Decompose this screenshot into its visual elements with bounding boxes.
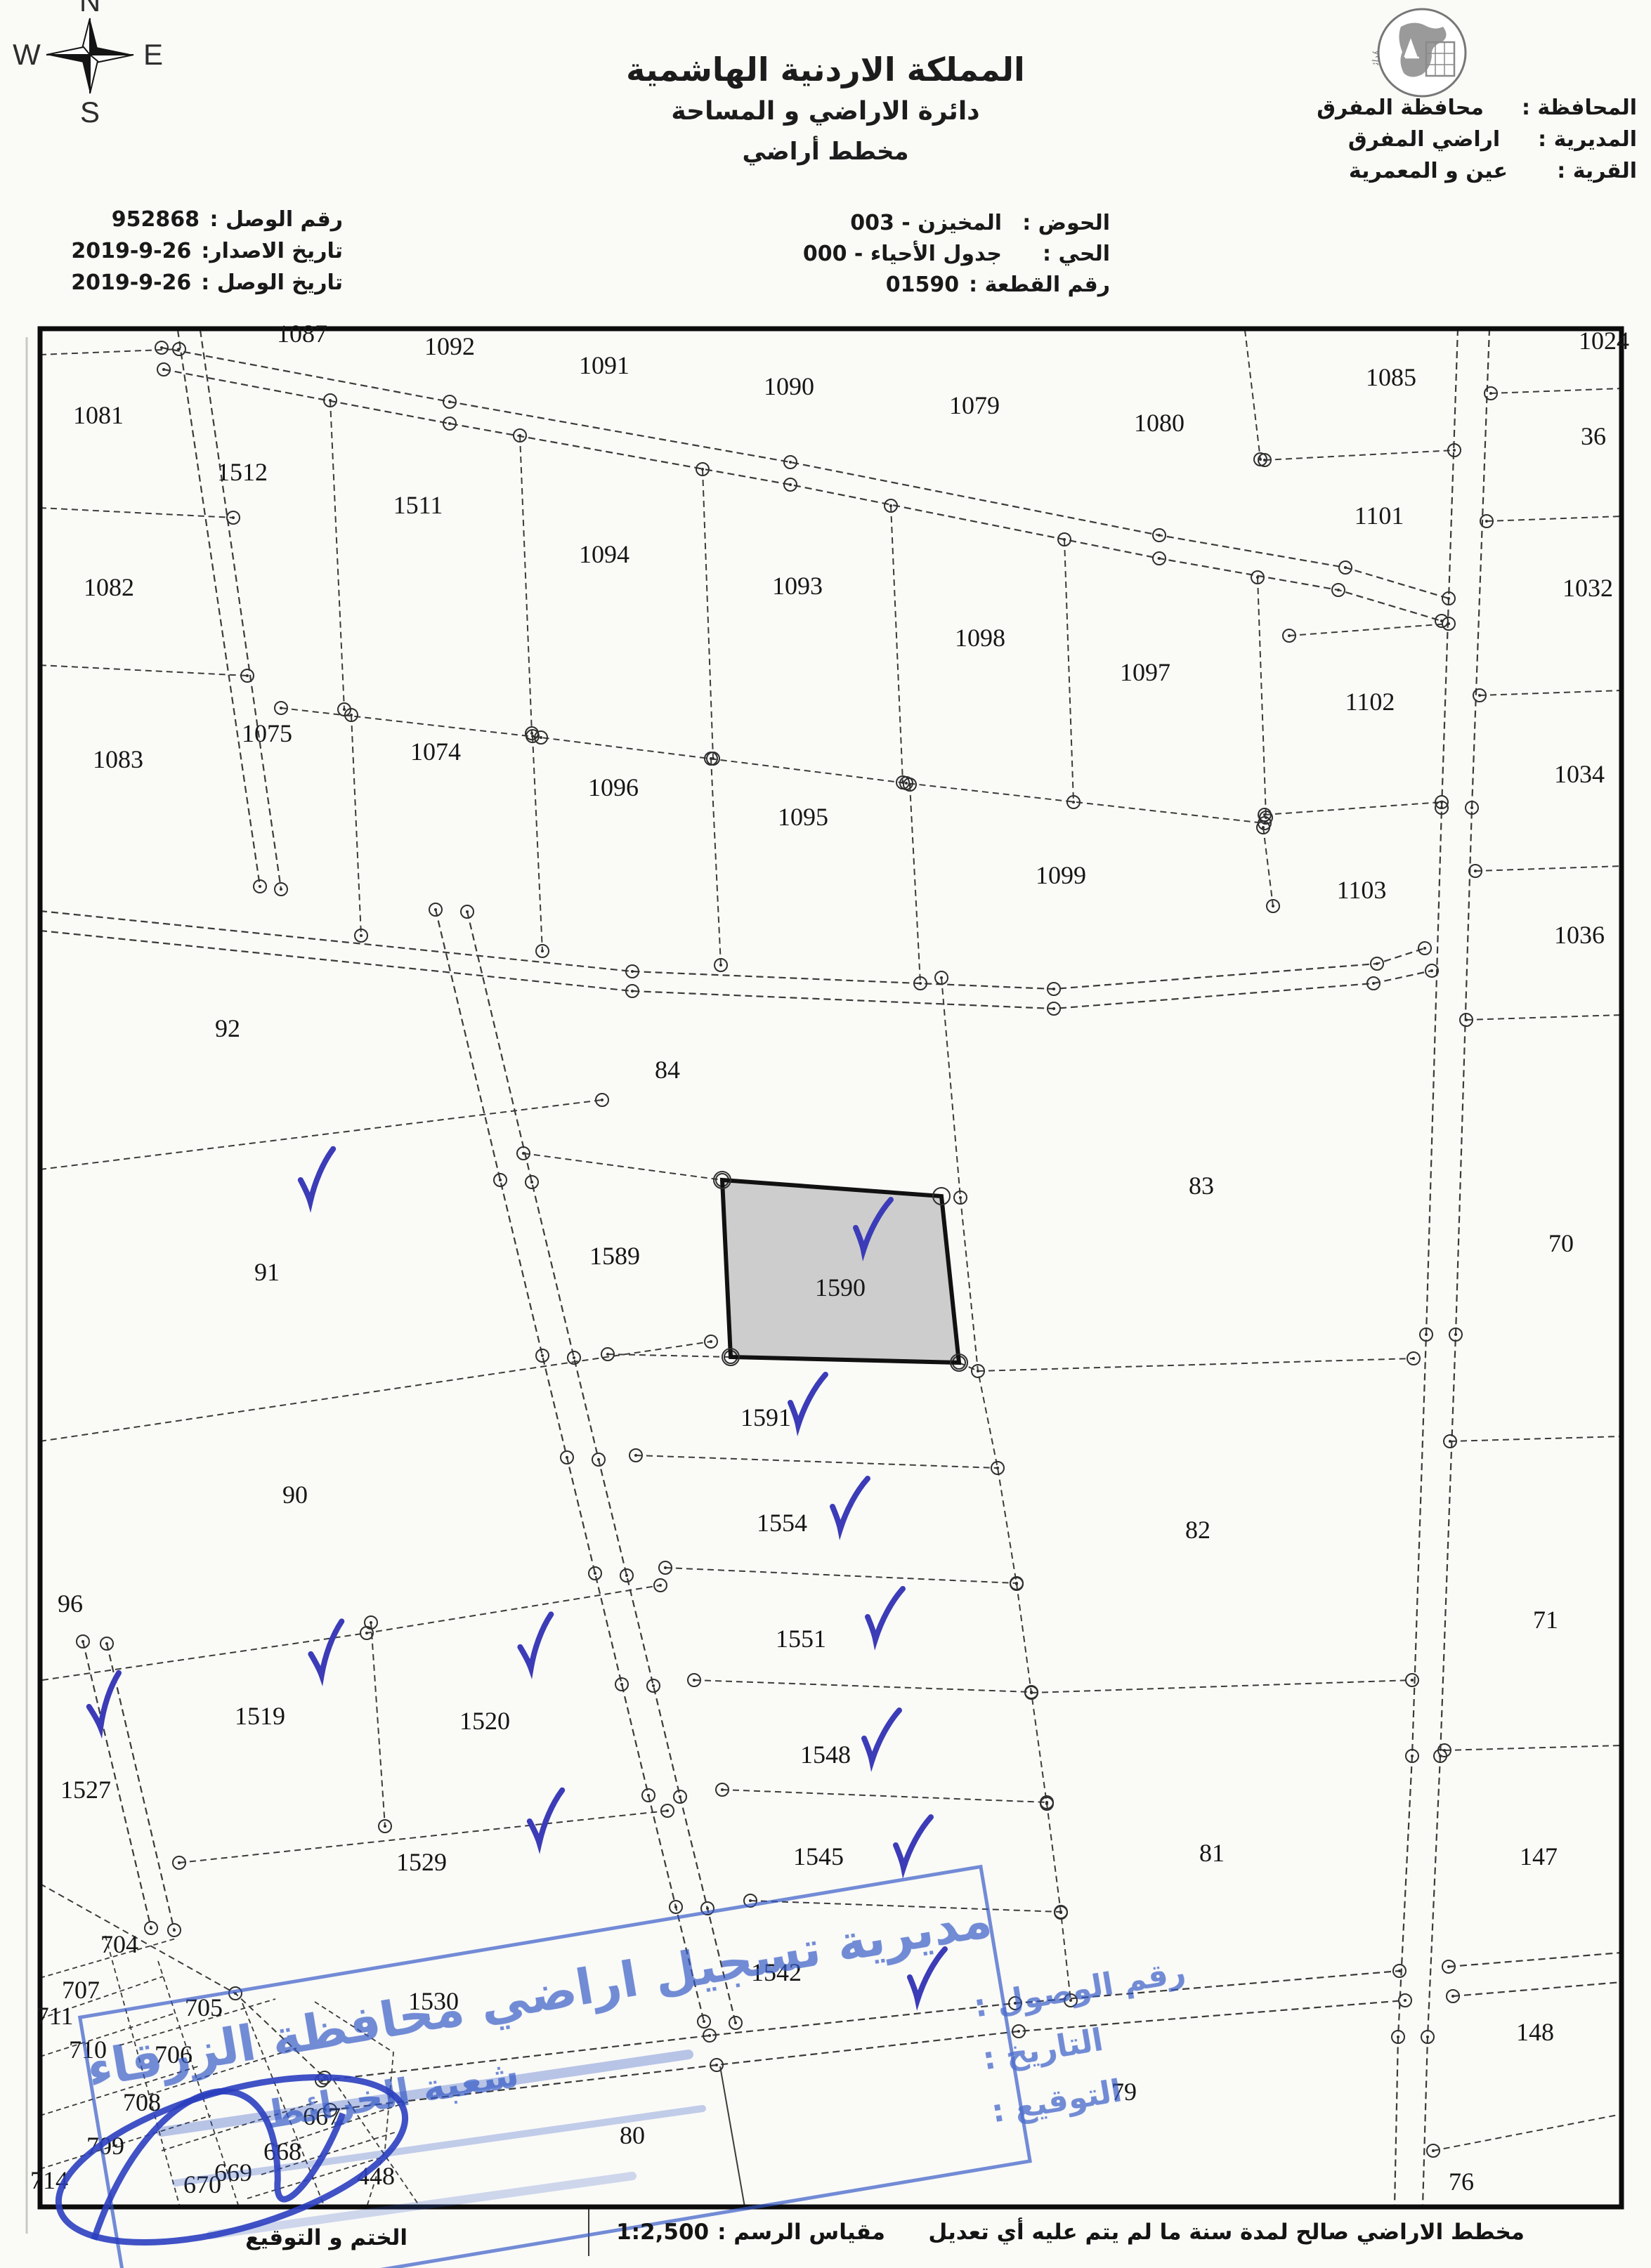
parcel-boundary-line bbox=[978, 1358, 1414, 1371]
survey-point-dot bbox=[448, 422, 451, 425]
survey-point-dot bbox=[1072, 801, 1075, 804]
survey-point-dot bbox=[160, 346, 163, 349]
survey-point-dot bbox=[664, 1566, 667, 1569]
survey-point-dot bbox=[919, 982, 922, 985]
survey-point-dot bbox=[1430, 969, 1433, 972]
checkmark-icon bbox=[516, 1614, 559, 1669]
survey-point-dot bbox=[1451, 1995, 1454, 1998]
survey-point-dot bbox=[1288, 634, 1291, 637]
survey-point-dot bbox=[1447, 597, 1450, 600]
parcel-boundary-line bbox=[330, 400, 344, 709]
directorate-label: المديرية : bbox=[1538, 127, 1637, 152]
parcel-label-76: 76 bbox=[1449, 2168, 1474, 2196]
survey-point-dot bbox=[350, 714, 353, 716]
basin-row: الحوض : المخيزن - 003 bbox=[850, 211, 1110, 235]
parcel-boundary-line bbox=[891, 506, 903, 782]
parcel-boundary-line bbox=[1444, 1745, 1621, 1750]
survey-point-dot bbox=[905, 782, 908, 785]
survey-point-dot bbox=[531, 735, 534, 738]
survey-point-dot bbox=[1372, 982, 1375, 985]
survey-point-dot bbox=[715, 2064, 718, 2066]
receipt-number-row: رقم الوصل : 952868 bbox=[112, 207, 343, 232]
kingdom-title: المملكة الاردنية الهاشمية bbox=[0, 51, 1651, 89]
survey-point-dot bbox=[706, 1907, 709, 1910]
survey-point-dot bbox=[1412, 1357, 1415, 1360]
parcel-boundary-line bbox=[711, 759, 721, 965]
parcel-label-147: 147 bbox=[1520, 1842, 1558, 1870]
parcel-label-1087: 1087 bbox=[277, 320, 327, 348]
cadastral-map: N S E W دائرة الأراضي والمساحة Departmen… bbox=[0, 0, 1651, 2268]
survey-point-dot bbox=[541, 950, 544, 952]
survey-point-dot bbox=[631, 990, 634, 992]
parcel-label-36: 36 bbox=[1581, 422, 1606, 450]
survey-point-dot bbox=[370, 1621, 372, 1624]
survey-point-dot bbox=[789, 483, 792, 486]
governorate-label: المحافظة : bbox=[1522, 96, 1637, 120]
neighborhood-value: جدول الأحياء - 000 bbox=[803, 242, 1002, 266]
parcel-label-96: 96 bbox=[58, 1589, 83, 1618]
survey-point-dot bbox=[541, 1354, 544, 1357]
parcel-boundary-line bbox=[40, 1100, 602, 1169]
parcel-boundary-line bbox=[1487, 516, 1621, 521]
checkmark-icon bbox=[896, 1817, 931, 1868]
survey-point-dot bbox=[1158, 534, 1161, 537]
directorate-value: اراضي المفرق bbox=[1348, 127, 1500, 152]
parcel-label-1554: 1554 bbox=[757, 1509, 807, 1537]
survey-point-dot bbox=[647, 1794, 650, 1797]
survey-point-dot bbox=[1059, 1910, 1062, 1913]
survey-point-dot bbox=[679, 1795, 681, 1798]
parcel-label-1589: 1589 bbox=[589, 1242, 640, 1270]
survey-point-dot bbox=[1447, 622, 1450, 625]
parcel-label-1082: 1082 bbox=[84, 573, 134, 601]
survey-point-dot bbox=[162, 368, 165, 371]
road-line bbox=[1423, 329, 1489, 2207]
parcel-label-1093: 1093 bbox=[772, 572, 823, 600]
survey-point-dot bbox=[232, 516, 235, 519]
directorate-row: المديرية : اراضي المفرق bbox=[1348, 127, 1637, 152]
issue-date-label: تاريخ الاصدار: bbox=[201, 239, 343, 263]
survey-point-dot bbox=[1052, 1007, 1055, 1010]
survey-point-dot bbox=[150, 1927, 152, 1929]
survey-point-dot bbox=[1489, 392, 1492, 395]
parcel-boundary-line bbox=[42, 1585, 660, 1680]
survey-point-dot bbox=[1447, 1965, 1450, 1968]
stamp-field2: التاريخ : bbox=[980, 2022, 1106, 2078]
parcel-label-1094: 1094 bbox=[579, 540, 629, 568]
parcel-boundary-line bbox=[520, 435, 532, 733]
survey-point-dot bbox=[1063, 538, 1066, 541]
parcel-boundary-line bbox=[1265, 802, 1442, 815]
survey-point-dot bbox=[631, 970, 634, 973]
survey-point-dot bbox=[908, 783, 911, 786]
checkmark-icon bbox=[307, 1621, 349, 1676]
checkmark-icon bbox=[868, 1589, 903, 1639]
survey-point-dot bbox=[1485, 520, 1488, 523]
issue-date-value: 2019-9-26 bbox=[71, 239, 191, 263]
survey-point-dot bbox=[343, 708, 346, 711]
survey-point-dot bbox=[1015, 1582, 1018, 1585]
boundary-line bbox=[720, 2066, 745, 2207]
parcel-label-70: 70 bbox=[1548, 1229, 1574, 1257]
parcel-boundary-line bbox=[1491, 388, 1621, 393]
survey-point-dot bbox=[448, 400, 451, 403]
road-line bbox=[1449, 1953, 1621, 1967]
receipt-date-value: 2019-9-26 bbox=[71, 270, 191, 295]
parcel-boundary-line bbox=[636, 1455, 998, 1468]
parcel-label-1032: 1032 bbox=[1562, 574, 1613, 602]
survey-point-dot bbox=[959, 1196, 962, 1199]
survey-point-dot bbox=[652, 1684, 655, 1687]
parcel-boundary-line bbox=[1263, 827, 1273, 906]
survey-point-dot bbox=[889, 504, 892, 507]
parcel-boundary-line bbox=[1031, 1680, 1412, 1693]
parcel-boundary-line bbox=[1064, 539, 1074, 802]
parcel-label-1099: 1099 bbox=[1036, 861, 1086, 889]
survey-point-dot bbox=[1478, 694, 1481, 697]
survey-point-dot bbox=[1432, 2149, 1435, 2152]
survey-point-dot bbox=[1423, 947, 1426, 950]
governorate-row: المحافظة : محافظة المفرق bbox=[1317, 96, 1637, 120]
survey-point-dot bbox=[620, 1683, 623, 1686]
survey-point-dot bbox=[1453, 449, 1456, 452]
parcel-label-1092: 1092 bbox=[424, 332, 475, 360]
parcel-label-1520: 1520 bbox=[459, 1707, 510, 1735]
plot-number-label: رقم القطعة : bbox=[969, 273, 1110, 297]
map-scale-label: مقياس الرسم : bbox=[717, 2220, 885, 2245]
parcel-boundary-line bbox=[1475, 866, 1621, 871]
survey-point-dot bbox=[518, 434, 521, 437]
road-line bbox=[200, 330, 281, 889]
parcel-label-1095: 1095 bbox=[778, 803, 828, 831]
map-scale-value: 1:2,500 bbox=[616, 2220, 709, 2245]
survey-point-dot bbox=[246, 674, 249, 677]
checkmark-icon bbox=[298, 1149, 337, 1202]
road-line bbox=[40, 931, 1432, 1009]
survey-point-dot bbox=[710, 1340, 712, 1343]
survey-point-dot bbox=[749, 1899, 752, 1902]
survey-point-dot bbox=[434, 908, 437, 911]
governorate-value: محافظة المفرق bbox=[1317, 96, 1484, 120]
survey-point-dot bbox=[659, 1584, 662, 1587]
survey-point-dot bbox=[606, 1353, 609, 1356]
survey-point-dot bbox=[499, 1179, 502, 1181]
road-line bbox=[467, 912, 736, 2023]
parcel-label-1519: 1519 bbox=[235, 1702, 285, 1730]
survey-point-dot bbox=[178, 348, 181, 350]
land-plan-document: N S E W دائرة الأراضي والمساحة Departmen… bbox=[0, 0, 1651, 2268]
parcel-boundary-line bbox=[40, 1342, 711, 1441]
survey-point-dot bbox=[173, 1929, 176, 1932]
parcel-label-1103: 1103 bbox=[1337, 876, 1387, 904]
survey-point-dot bbox=[721, 1788, 724, 1791]
village-row: القرية : عين و المعمرية bbox=[1349, 159, 1637, 183]
parcel-label-80: 80 bbox=[620, 2121, 645, 2149]
parcel-label-1081: 1081 bbox=[73, 401, 124, 429]
survey-point-dot bbox=[701, 468, 704, 471]
parcel-label-82: 82 bbox=[1185, 1516, 1210, 1544]
parcel-boundary-line bbox=[281, 708, 1265, 823]
survey-point-dot bbox=[1344, 566, 1347, 569]
neighborhood-label: الحي : bbox=[1012, 242, 1110, 266]
checkmark-icon bbox=[833, 1479, 868, 1529]
parcel-label-1512: 1512 bbox=[217, 458, 268, 486]
parcel-boundary-line bbox=[722, 1790, 1047, 1802]
survey-point-dot bbox=[625, 1574, 628, 1577]
parcel-label-707: 707 bbox=[62, 1976, 100, 2004]
parcel-boundary-line bbox=[910, 785, 920, 983]
survey-point-dot bbox=[1440, 801, 1443, 804]
parcel-boundary-line bbox=[1258, 577, 1266, 818]
issue-date-row: تاريخ الاصدار: 2019-9-26 bbox=[71, 239, 343, 263]
survey-point-dot bbox=[977, 1370, 979, 1372]
parcel-label-668: 668 bbox=[263, 2137, 301, 2165]
basin-value: المخيزن - 003 bbox=[850, 211, 1002, 235]
parcel-label-1529: 1529 bbox=[396, 1848, 447, 1876]
parcel-boundary-line bbox=[371, 1623, 385, 1826]
stamp-field3: التوقيع : bbox=[989, 2073, 1125, 2130]
parcel-label-1096: 1096 bbox=[588, 773, 639, 801]
receipt-date-label: تاريخ الوصل : bbox=[201, 270, 343, 295]
parcel-boundary-line bbox=[941, 978, 1071, 2000]
parcel-label-91: 91 bbox=[254, 1258, 280, 1286]
survey-point-dot bbox=[1398, 1969, 1401, 1972]
receipt-number-label: رقم الوصل : bbox=[209, 207, 343, 232]
parcel-label-1036: 1036 bbox=[1554, 921, 1605, 949]
plot-number-row: رقم القطعة : 01590 bbox=[886, 273, 1110, 297]
parcel-boundary-line bbox=[1466, 1015, 1621, 1020]
validity-note: مخطط الاراضي صالح لمدة سنة ما لم يتم علي… bbox=[928, 2220, 1525, 2245]
survey-point-dot bbox=[601, 1099, 603, 1101]
parcel-boundary-line bbox=[959, 1363, 978, 1371]
survey-point-dot bbox=[105, 1642, 108, 1645]
parcel-boundary-line bbox=[523, 1153, 722, 1180]
survey-point-dot bbox=[719, 964, 722, 966]
survey-point-dot bbox=[1263, 459, 1266, 461]
survey-point-dot bbox=[466, 910, 469, 913]
survey-point-dot bbox=[365, 1632, 368, 1634]
survey-point-dot bbox=[329, 399, 332, 402]
survey-point-dot bbox=[1263, 813, 1266, 816]
survey-point-dot bbox=[1454, 1333, 1457, 1336]
road-line bbox=[178, 330, 260, 886]
parcel-boundary-line bbox=[1245, 330, 1260, 459]
parcel-label-1024: 1024 bbox=[1579, 327, 1629, 355]
parcel-label-1091: 1091 bbox=[579, 351, 629, 379]
parcel-label-711: 711 bbox=[37, 2002, 74, 2030]
survey-point-dot bbox=[789, 461, 792, 464]
road-line bbox=[40, 911, 1425, 989]
survey-point-dot bbox=[1465, 1018, 1468, 1021]
parcel-boundary-line bbox=[1480, 690, 1621, 695]
survey-point-dot bbox=[522, 1152, 525, 1155]
survey-point-dot bbox=[1158, 557, 1161, 560]
parcel-boundary-line bbox=[1289, 624, 1449, 636]
survey-point-dot bbox=[1045, 1801, 1048, 1804]
survey-point-dot bbox=[1426, 2036, 1429, 2038]
road-line bbox=[1453, 1982, 1621, 1996]
survey-point-dot bbox=[710, 757, 712, 760]
parcel-label-92: 92 bbox=[215, 1014, 240, 1042]
parcel-label-1079: 1079 bbox=[949, 391, 1000, 419]
survey-point-dot bbox=[280, 888, 282, 891]
survey-point-dot bbox=[566, 1456, 568, 1459]
parcel-label-1074: 1074 bbox=[410, 738, 461, 766]
survey-point-dot bbox=[178, 1861, 181, 1864]
survey-point-dot bbox=[1443, 1749, 1446, 1752]
survey-point-dot bbox=[674, 1906, 677, 1908]
survey-point-dot bbox=[693, 1679, 696, 1682]
parcel-label-148: 148 bbox=[1516, 2018, 1554, 2046]
highlighted-parcel-fill bbox=[722, 1180, 959, 1363]
parcel-label-90: 90 bbox=[282, 1481, 308, 1509]
parcel-label-1101: 1101 bbox=[1355, 502, 1404, 530]
survey-point-dot bbox=[1256, 576, 1259, 579]
parcel-label-1098: 1098 bbox=[955, 624, 1005, 652]
survey-point-dot bbox=[597, 1458, 600, 1461]
survey-point-dot bbox=[1052, 988, 1055, 990]
survey-point-dot bbox=[703, 2020, 705, 2023]
parcel-label-1527: 1527 bbox=[60, 1776, 111, 1804]
survey-point-dot bbox=[1404, 1999, 1407, 2002]
survey-point-dot bbox=[384, 1825, 386, 1828]
parcel-label-1090: 1090 bbox=[764, 372, 814, 400]
parcel-boundary-line bbox=[533, 736, 542, 951]
parcel-boundary-line bbox=[694, 1680, 1031, 1692]
parcel-label-704: 704 bbox=[100, 1930, 138, 1958]
survey-point-dot bbox=[594, 1572, 596, 1575]
map-scale: مقياس الرسم : 1:2,500 bbox=[616, 2220, 885, 2245]
survey-point-dot bbox=[1017, 2030, 1020, 2033]
stamp-field1: رقم الوصول : bbox=[972, 1954, 1189, 2025]
survey-point-dot bbox=[540, 736, 542, 739]
checkmark-icon bbox=[864, 1710, 899, 1761]
survey-point-dot bbox=[1411, 1679, 1414, 1682]
survey-point-dot bbox=[1411, 1755, 1414, 1757]
parcel-label-1083: 1083 bbox=[93, 745, 143, 773]
survey-point-dot bbox=[530, 1181, 533, 1184]
receipt-number-value: 952868 bbox=[112, 207, 200, 232]
survey-point-dot bbox=[530, 732, 533, 735]
survey-point-dot bbox=[734, 2021, 737, 2024]
registration-stamp: مديرية تسجيل اراضي محافظة الزرقاءشعبة ال… bbox=[79, 1836, 1212, 2268]
receipt-date-row: تاريخ الوصل : 2019-9-26 bbox=[71, 270, 343, 295]
survey-point-dot bbox=[1337, 589, 1340, 591]
parcel-label-1102: 1102 bbox=[1345, 688, 1395, 716]
parcel-label-1511: 1511 bbox=[393, 491, 443, 519]
parcel-label-81: 81 bbox=[1199, 1839, 1225, 1867]
stamp-signature-caption: الختم و التوقيع bbox=[245, 2225, 407, 2250]
parcel-label-1590: 1590 bbox=[815, 1273, 866, 1302]
checkmark-icon bbox=[790, 1375, 825, 1425]
parcel-label-1545: 1545 bbox=[793, 1842, 844, 1870]
parcel-label-1085: 1085 bbox=[1366, 363, 1416, 391]
parcel-boundary-line bbox=[1450, 1436, 1621, 1441]
survey-point-dot bbox=[1474, 870, 1477, 872]
parcel-label-83: 83 bbox=[1189, 1172, 1214, 1200]
survey-point-dot bbox=[666, 1809, 669, 1812]
basin-label: الحوض : bbox=[1012, 211, 1110, 235]
survey-point-dot bbox=[1397, 2036, 1399, 2038]
survey-point-dot bbox=[1449, 1440, 1451, 1443]
parcel-boundary-line bbox=[703, 469, 713, 759]
plot-number-value: 01590 bbox=[886, 273, 959, 297]
survey-point-dot bbox=[1262, 826, 1265, 829]
parcel-label-1034: 1034 bbox=[1554, 760, 1605, 788]
logo-english-text: Department of Lands & Survey bbox=[0, 0, 1382, 55]
parcel-boundary-line bbox=[1433, 2114, 1621, 2151]
parcel-label-1548: 1548 bbox=[800, 1741, 851, 1769]
parcel-boundary-line bbox=[665, 1568, 1017, 1583]
survey-point-dot bbox=[1030, 1691, 1033, 1693]
survey-point-dot bbox=[1376, 962, 1378, 965]
parcel-boundary-line bbox=[40, 665, 247, 676]
survey-point-dot bbox=[1259, 458, 1262, 461]
parcel-label-1075: 1075 bbox=[242, 719, 292, 747]
parcel-label-1591: 1591 bbox=[740, 1403, 791, 1431]
neighborhood-row: الحي : جدول الأحياء - 000 bbox=[803, 242, 1110, 266]
parcel-label-1080: 1080 bbox=[1134, 409, 1185, 437]
village-label: القرية : bbox=[1546, 159, 1637, 183]
survey-point-dot bbox=[259, 885, 261, 888]
village-value: عين و المعمرية bbox=[1349, 159, 1508, 183]
survey-point-dot bbox=[708, 2034, 711, 2037]
survey-point-dot bbox=[1470, 806, 1473, 809]
compass-north-label: N bbox=[79, 0, 100, 18]
parcel-label-84: 84 bbox=[655, 1056, 680, 1084]
survey-point-dot bbox=[81, 1640, 84, 1643]
survey-point-dot bbox=[996, 1467, 999, 1469]
checkmark-icon bbox=[527, 1790, 566, 1844]
parcel-boundary-line bbox=[351, 715, 361, 936]
survey-point-dot bbox=[634, 1454, 637, 1457]
parcel-boundary-line bbox=[1265, 450, 1454, 460]
survey-point-dot bbox=[1425, 1333, 1428, 1336]
survey-point-dot bbox=[360, 934, 363, 937]
survey-point-dot bbox=[280, 707, 282, 709]
parcel-label-71: 71 bbox=[1533, 1606, 1558, 1634]
parcel-label-1551: 1551 bbox=[776, 1625, 826, 1653]
survey-point-dot bbox=[1272, 905, 1274, 907]
survey-point-dot bbox=[573, 1356, 575, 1359]
survey-point-dot bbox=[940, 976, 943, 979]
parcel-label-1097: 1097 bbox=[1120, 658, 1170, 686]
